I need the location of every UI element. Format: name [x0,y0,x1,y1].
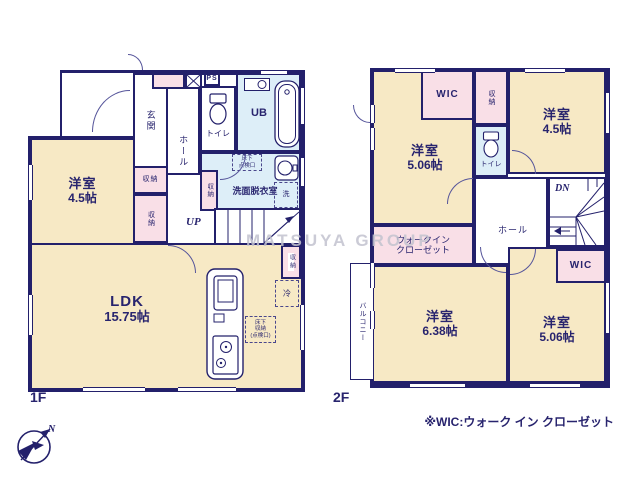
window-marker [370,128,375,150]
toilet-icon [481,131,501,159]
closet-label: 収納 [146,211,154,227]
room-label-toilet-1f: トイレ [206,129,230,138]
closet-label: 収納 [288,253,295,271]
floor-label-1f: 1F [30,389,46,405]
underfloor-storage: 床下 収納 (点検口) [245,316,276,343]
window-marker [395,68,435,73]
window-marker [370,105,375,123]
washbasin-icon [274,155,299,181]
room-yoshitsu-1f: 洋室 4.5帖 [30,138,135,245]
stairs-up-label: UP [186,216,201,229]
storage-label: (点検口) [250,333,270,339]
room-label-hall-1f: ホール [178,135,188,168]
window-marker [370,263,375,288]
room-name: LDK [62,293,192,310]
wic-footnote: ※WIC:ウォーク イン クローゼット [424,413,614,430]
room-label-ps: PS [206,75,217,83]
laundry-label: 洗 [283,191,290,199]
room-label-nw: 洋室 5.06帖 [384,144,466,173]
room-name: 洋室 [426,310,454,325]
bathtub-icon [274,80,300,148]
ub-sink-icon [244,78,270,91]
closet-b: 収納 [133,194,168,243]
window-marker [530,383,580,388]
room-name: 洋室 [543,108,571,123]
room-yoshitsu-sw: 洋室 6.38帖 [372,265,508,383]
window-marker [605,283,610,333]
balcony-label: バルコニー [358,302,366,342]
window-marker [525,68,565,73]
closet-a: 収納 [133,166,168,194]
kitchen-counter-icon [206,268,244,380]
room-label-ldk: LDK 15.75帖 [62,293,192,325]
window-marker [261,70,287,75]
room-size: 4.5帖 [68,192,97,206]
window-marker [410,383,465,388]
room-label-hall-2f: ホール [488,225,538,235]
room-size: 15.75帖 [62,310,192,325]
closet-wic-top: WIC [421,70,474,120]
shoe-cabinet [152,73,185,89]
window-marker [300,158,305,186]
laundry-space: 洗 [274,182,298,208]
closet-label: 収納 [205,183,212,198]
room-size: 5.06帖 [384,159,466,173]
room-label-ub: UB [244,107,274,120]
room-size: 6.38帖 [422,325,457,339]
window-marker [370,311,375,329]
room-size: 5.06帖 [539,331,574,345]
compass-icon: N [10,420,62,472]
wic-label: WIC [436,89,458,101]
room-size: 4.5帖 [543,123,572,137]
floorplan-page: { "f1": { "floor_label": "1F", "yoshitsu… [0,0,640,480]
closet-label: 収納 [143,176,159,184]
room-toilet-1f: トイレ [200,86,236,152]
closet-label: 収納 [487,90,495,106]
room-label-toilet-2f: トイレ [481,161,502,169]
window-marker [300,88,305,124]
closet-senmen: 収納 [200,170,218,211]
stairs-down-label: DN [555,183,569,195]
window-marker [83,387,145,392]
window-marker [28,295,33,335]
room-name: 洋室 [68,177,96,192]
pipe-space: PS [204,73,220,86]
window-marker [605,93,610,133]
window-marker [28,165,33,200]
room-toilet-2f: トイレ [474,125,508,177]
floor-label-2f: 2F [333,389,349,405]
room-name: 洋室 [384,144,466,159]
cross-icon [187,75,200,87]
window-marker [178,387,236,392]
window-marker [300,305,305,350]
fridge-label: 冷 [283,289,291,298]
closet-2f: 収納 [474,70,508,125]
wic-label: WIC [570,260,592,272]
watermark: MATSUYA GROUP [246,231,433,251]
floor-plan-2f: 洋室 5.06帖 WIC 収納 洋室 4.5帖 トイレ ホール [350,68,612,392]
room-name: 洋室 [543,316,571,331]
compass-north-label: N [47,424,56,435]
closet-wic-se: WIC [556,249,606,283]
stairs-down: DN [548,177,606,247]
door-arc [128,54,143,70]
room-label-genkan: 玄関 [145,110,155,132]
fridge-space: 冷 [275,280,299,307]
room-ub: UB [236,73,301,152]
toilet-icon [207,93,229,127]
door-arc [353,105,370,123]
